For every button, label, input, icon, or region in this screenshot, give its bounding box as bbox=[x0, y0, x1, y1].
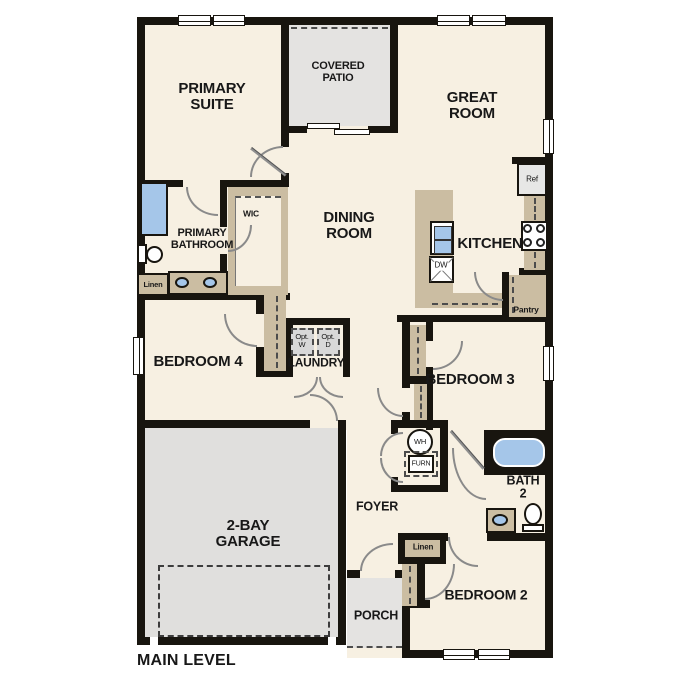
counter-dashed bbox=[534, 252, 536, 268]
wall bbox=[487, 533, 553, 541]
bathtub bbox=[493, 438, 545, 467]
wall bbox=[391, 420, 446, 428]
room-label-primary-suite: PRIMARY SUITE bbox=[178, 81, 245, 113]
sliding-door bbox=[334, 129, 370, 135]
garage-door-jamb bbox=[150, 637, 158, 645]
shower bbox=[140, 182, 168, 236]
wall bbox=[220, 180, 288, 187]
window bbox=[543, 119, 554, 154]
room-label-bedroom4: BEDROOM 4 bbox=[153, 354, 242, 370]
room-label-great-room: GREAT ROOM bbox=[447, 90, 497, 122]
fixture-label-furn: FURN bbox=[412, 460, 431, 467]
room-label-wic: WIC bbox=[243, 209, 259, 218]
wall bbox=[390, 17, 398, 133]
garage-door-jamb bbox=[328, 637, 336, 645]
window bbox=[543, 346, 554, 381]
window bbox=[178, 15, 211, 26]
wall bbox=[395, 570, 402, 578]
wall bbox=[338, 420, 346, 645]
counter-dashed bbox=[432, 303, 498, 305]
fixture-label-opt-d: Opt. D bbox=[321, 333, 334, 349]
wall bbox=[368, 126, 398, 133]
room-label-garage: 2-BAY GARAGE bbox=[216, 518, 281, 550]
page-title: MAIN LEVEL bbox=[137, 652, 236, 670]
wall bbox=[545, 17, 553, 658]
porch-edge-dashed-line bbox=[347, 646, 402, 648]
room-label-primary-bathroom: PRIMARY BATHROOM bbox=[171, 228, 233, 252]
burner-icon bbox=[523, 238, 532, 247]
room-label-covered-patio: COVERED PATIO bbox=[312, 61, 365, 85]
sink bbox=[203, 277, 217, 288]
wall bbox=[137, 420, 145, 645]
burner-icon bbox=[536, 224, 545, 233]
burner-icon bbox=[523, 224, 532, 233]
wall bbox=[440, 420, 448, 492]
wall bbox=[286, 318, 350, 325]
wall bbox=[220, 187, 227, 227]
wall bbox=[398, 533, 446, 540]
closet-rod-dashed bbox=[276, 296, 278, 368]
island-sink-basin bbox=[434, 240, 452, 254]
wall bbox=[137, 420, 310, 428]
wall bbox=[398, 557, 446, 564]
window bbox=[478, 649, 510, 660]
window bbox=[443, 649, 475, 660]
room-label-linen-hall: Linen bbox=[413, 544, 433, 553]
fixture-label-ref: Ref bbox=[526, 176, 538, 185]
closet-rod-dashed bbox=[417, 327, 419, 374]
fixture-label-wh: WH bbox=[414, 438, 426, 446]
fixture-label-dw: DW bbox=[434, 262, 449, 271]
floor-plan: PRIMARY SUITE COVERED PATIO GREAT ROOM D… bbox=[0, 0, 687, 687]
wall bbox=[137, 637, 346, 645]
room-label-porch: PORCH bbox=[354, 609, 398, 622]
window bbox=[437, 15, 470, 26]
wall bbox=[256, 300, 264, 314]
sink bbox=[175, 277, 189, 288]
toilet-bowl bbox=[524, 503, 542, 525]
wall bbox=[502, 272, 509, 317]
window bbox=[472, 15, 506, 26]
closet-rod-dashed bbox=[420, 386, 422, 418]
room-label-bath2: BATH 2 bbox=[507, 475, 540, 502]
wall bbox=[281, 126, 307, 133]
patio-roof-dashed-line bbox=[291, 27, 388, 29]
garage-door-dashed-outline bbox=[158, 565, 330, 637]
toilet-tank bbox=[522, 524, 544, 532]
room-label-linen-bath: Linen bbox=[144, 281, 163, 289]
room-label-laundry: LAUNDRY bbox=[288, 357, 345, 370]
wall bbox=[391, 485, 446, 492]
room-label-foyer: FOYER bbox=[356, 500, 398, 513]
wall bbox=[347, 570, 360, 578]
counter-dashed bbox=[534, 198, 536, 220]
room-label-dining-room: DINING ROOM bbox=[323, 210, 374, 242]
room-label-kitchen: KITCHEN bbox=[457, 236, 522, 252]
room-label-bedroom3: BEDROOM 3 bbox=[425, 372, 514, 388]
room-label-pantry: Pantry bbox=[513, 305, 538, 314]
burner-icon bbox=[536, 238, 545, 247]
toilet-bowl bbox=[146, 246, 163, 263]
window bbox=[133, 337, 144, 375]
closet-rod-dashed bbox=[409, 566, 411, 604]
sink bbox=[492, 514, 508, 526]
fixture-label-opt-w: Opt. W bbox=[295, 333, 308, 349]
window bbox=[213, 15, 245, 26]
wall bbox=[426, 322, 433, 341]
island-sink-basin bbox=[434, 226, 452, 240]
hall-closet-shelving bbox=[264, 293, 286, 371]
room-label-bedroom2: BEDROOM 2 bbox=[445, 588, 528, 603]
